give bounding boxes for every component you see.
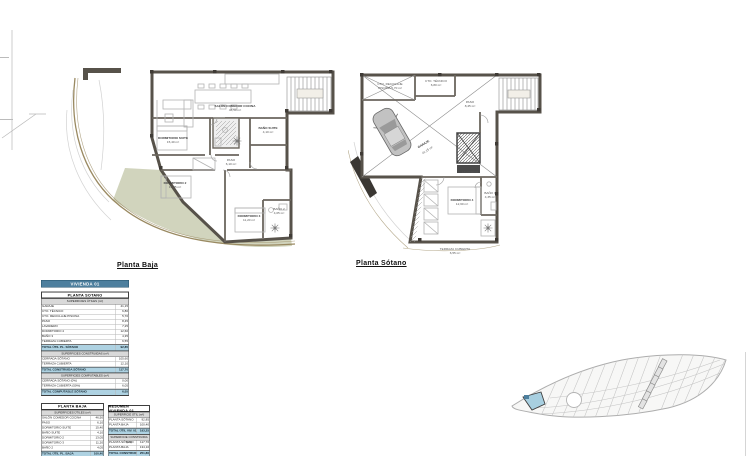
drawing-sheet: SALÓN COMEDOR COCINA46,50 m²DORMITORIO S…	[0, 0, 756, 456]
sheet-tick	[0, 57, 9, 58]
room-label: LAVADERO	[462, 170, 479, 174]
room-label: 4,05 m²	[274, 211, 285, 215]
room-label: 11,20 m²	[243, 218, 255, 222]
table-total-row: TOTAL ÚTIL PL. BAJA100,40	[42, 451, 104, 456]
room-label: 6,80 m²	[431, 83, 442, 87]
table-planta-sotano: PLANTA SOTANOSUPERFICIES ÚTILES (m²)GARA…	[41, 292, 129, 396]
elevator-shaft	[457, 133, 480, 173]
room-label: 13,05 m²	[169, 185, 181, 189]
table-resumen: RESUMEN VIVIENDA 01SUPERFICIE ÚTIL (m²)P…	[108, 405, 150, 456]
plan-title-sotano: Planta Sótano	[356, 260, 407, 267]
bath-core-hatch	[216, 121, 236, 145]
staircase	[499, 78, 538, 110]
sheet-tick	[0, 119, 13, 120]
table-total-row: TOTAL CONSTRUIDA SÓTANO117,70	[42, 367, 129, 373]
vivienda-header: VIVIENDA 01	[41, 280, 129, 288]
neighbor-wall	[83, 68, 121, 80]
room-label: 46,50 m²	[229, 108, 241, 112]
table-title: RESUMEN VIVIENDA 01	[109, 406, 150, 413]
room-label: 6,10 m²	[226, 162, 237, 166]
fan-icon	[484, 224, 493, 233]
room-label: PISCINA 5,70 m²	[378, 86, 402, 90]
room-label: 4,10 m²	[263, 130, 274, 134]
area-tables: VIVIENDA 01 PLANTA SOTANOSUPERFICIES ÚTI…	[41, 280, 221, 456]
plan-title-baja: Planta Baja	[117, 262, 158, 269]
table-total-row: TOTAL ÚTIL VIV. 01193,25	[109, 428, 150, 434]
table-total-row: TOTAL COMPUTABLE SÓTANO6,05	[42, 389, 129, 395]
room-label: 15,40 m²	[167, 140, 179, 144]
site-roundabout	[567, 393, 582, 408]
plot-tag	[524, 395, 529, 399]
staircase	[287, 77, 331, 111]
room-label: 8,45 m²	[465, 104, 476, 108]
planta-sotano-plan: CTO. RECICLAJEPISCINA 5,70 m²CTO. TÉCNIC…	[348, 52, 598, 267]
room-label: 6,55 m²	[450, 251, 461, 255]
table-planta-baja: PLANTA BAJASUPERFICIES ÚTILES (m²)SALÓN …	[41, 403, 104, 456]
planta-baja-plan: SALÓN COMEDOR COCINA46,50 m²DORMITORIO S…	[65, 50, 345, 265]
fan-icon	[271, 224, 280, 233]
room-label: 4,35 m²	[485, 195, 496, 199]
table-total-row: TOTAL CONSTRUIDA VIV. 01251,80	[109, 450, 150, 456]
fan-icon	[233, 137, 242, 146]
construction-lines	[0, 28, 60, 154]
room-label: 12,60 m²	[456, 202, 468, 206]
site-plan	[510, 350, 750, 450]
